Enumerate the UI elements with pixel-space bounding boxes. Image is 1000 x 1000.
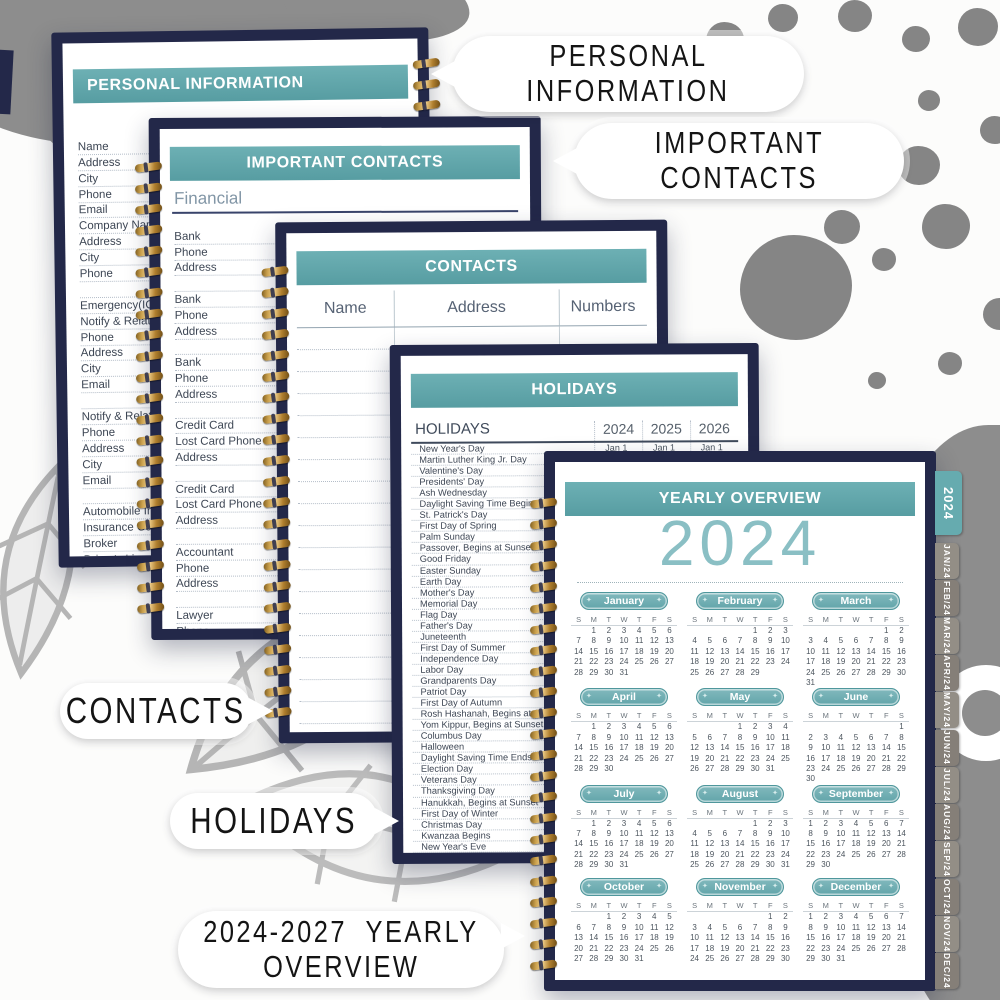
year-column-header: 2026 <box>690 420 738 440</box>
month-name-pill: ✦February✦ <box>696 592 784 610</box>
diamond-ornament-icon: ✦ <box>818 596 824 604</box>
weekday-letter: S <box>687 808 702 817</box>
tab-aug-24: AUG/24 <box>935 804 959 840</box>
day-number: 2 <box>894 626 909 636</box>
coil-ring <box>135 245 163 256</box>
day-number: 10 <box>833 829 848 839</box>
day-number: 21 <box>571 754 586 764</box>
day-number: 14 <box>879 743 894 753</box>
month-name-pill: ✦April✦ <box>580 688 668 706</box>
day-number <box>818 626 833 636</box>
day-number: 8 <box>803 829 818 839</box>
tab-sep-24: SEP/24 <box>935 841 959 877</box>
month-name-pill: ✦November✦ <box>696 878 784 896</box>
day-number: 13 <box>717 839 732 849</box>
month-calendar: ✦June✦SMTWTFS123456789101112131415161718… <box>803 688 909 784</box>
day-number: 1 <box>601 912 616 922</box>
day-number <box>662 954 677 964</box>
coil-ring <box>530 728 558 739</box>
day-number: 18 <box>848 839 863 849</box>
year-heading: 2024 <box>555 506 925 580</box>
tab-label: JUL/24 <box>942 768 952 802</box>
day-number: 29 <box>748 860 763 870</box>
weekday-letter: F <box>647 615 662 624</box>
day-number: 17 <box>818 754 833 764</box>
coil-ring <box>136 476 164 487</box>
field-label: Accountant <box>176 546 234 558</box>
tab-feb-24: FEB/24 <box>935 580 959 616</box>
day-number <box>586 912 601 922</box>
day-number: 30 <box>778 954 793 964</box>
day-number: 10 <box>818 743 833 753</box>
day-number: 17 <box>833 933 848 943</box>
day-number: 23 <box>803 764 818 774</box>
field-label: Lost Card Phone <box>176 499 262 511</box>
day-number <box>879 954 894 964</box>
day-number: 9 <box>818 829 833 839</box>
day-number <box>833 860 848 870</box>
weekday-letter: M <box>818 615 833 624</box>
day-number: 17 <box>763 743 778 753</box>
field-label: Lost Card Phone <box>175 436 261 448</box>
day-number: 27 <box>717 668 732 678</box>
day-number <box>894 954 909 964</box>
page-title: HOLIDAYS <box>531 381 617 399</box>
day-number: 26 <box>717 954 732 964</box>
day-number: 5 <box>687 733 702 743</box>
day-number: 14 <box>864 647 879 657</box>
day-number: 21 <box>732 850 747 860</box>
day-number <box>879 678 894 688</box>
day-number: 20 <box>864 754 879 764</box>
day-number: 28 <box>748 954 763 964</box>
weekday-letter: T <box>864 711 879 720</box>
day-number: 25 <box>687 668 702 678</box>
day-number: 14 <box>571 647 586 657</box>
diamond-ornament-icon: ✦ <box>586 596 592 604</box>
diamond-ornament-icon: ✦ <box>888 692 894 700</box>
day-number: 13 <box>662 636 677 646</box>
day-number: 17 <box>616 743 631 753</box>
day-number: 11 <box>848 829 863 839</box>
weekday-letter: T <box>833 808 848 817</box>
field-label: City <box>78 173 98 185</box>
day-number <box>571 626 586 636</box>
day-number: 1 <box>803 819 818 829</box>
weekday-letter: F <box>879 615 894 624</box>
day-number: 18 <box>632 839 647 849</box>
day-number <box>702 819 717 829</box>
weekday-header: SMTWTFS <box>571 708 677 722</box>
field-label: City <box>79 252 99 264</box>
day-number: 20 <box>662 743 677 753</box>
callout-contacts: CONTACTS <box>60 683 252 739</box>
field-label: Bank <box>175 357 201 369</box>
day-number: 15 <box>748 647 763 657</box>
polka-dot <box>922 204 970 249</box>
day-number: 26 <box>833 668 848 678</box>
day-number: 28 <box>894 944 909 954</box>
day-number: 1 <box>748 819 763 829</box>
day-number: 9 <box>601 733 616 743</box>
day-number: 13 <box>879 829 894 839</box>
day-number: 6 <box>732 923 747 933</box>
weekday-letter: T <box>717 901 732 910</box>
day-number: 12 <box>717 933 732 943</box>
day-number: 10 <box>616 829 631 839</box>
day-number: 6 <box>717 636 732 646</box>
year-column-header: 2024 <box>594 421 642 441</box>
month-name: May <box>730 691 750 703</box>
day-number: 26 <box>647 754 662 764</box>
day-number: 21 <box>571 850 586 860</box>
weekday-letter: S <box>662 901 677 910</box>
weekday-letter: W <box>848 711 863 720</box>
day-number: 29 <box>601 954 616 964</box>
day-number: 1 <box>748 626 763 636</box>
day-number: 30 <box>601 860 616 870</box>
weekday-letter: S <box>803 615 818 624</box>
day-number: 27 <box>848 668 863 678</box>
day-number: 1 <box>803 912 818 922</box>
day-number: 18 <box>778 743 793 753</box>
coil-ring <box>264 644 292 655</box>
coil-ring <box>135 287 163 298</box>
polka-dot <box>980 116 1000 144</box>
day-number: 9 <box>748 733 763 743</box>
day-number <box>732 819 747 829</box>
day-number: 30 <box>616 954 631 964</box>
weekday-letter: T <box>632 901 647 910</box>
coil-ring <box>136 518 164 529</box>
day-number: 27 <box>662 850 677 860</box>
day-number: 21 <box>894 839 909 849</box>
day-number: 5 <box>662 912 677 922</box>
day-number: 3 <box>803 636 818 646</box>
field-label: Phone <box>80 268 113 280</box>
table-cell <box>299 570 397 593</box>
day-number: 20 <box>662 839 677 849</box>
weekday-letter: W <box>732 615 747 624</box>
day-number: 21 <box>879 754 894 764</box>
day-number <box>571 912 586 922</box>
day-number: 29 <box>586 860 601 870</box>
day-grid: 1234567891011121314151617181920212223242… <box>571 626 677 678</box>
day-number: 16 <box>894 647 909 657</box>
day-number: 22 <box>803 944 818 954</box>
year-column-header: 2025 <box>642 420 690 440</box>
weekday-letter: M <box>818 711 833 720</box>
day-number <box>879 860 894 870</box>
month-name-pill: ✦July✦ <box>580 785 668 803</box>
coil-ring <box>136 497 164 508</box>
day-number: 21 <box>894 933 909 943</box>
day-number: 19 <box>848 754 863 764</box>
day-number <box>616 764 631 774</box>
page-title-band: CONTACTS <box>296 249 646 285</box>
tab-jan-24: JAN/24 <box>935 543 959 579</box>
day-number <box>778 764 793 774</box>
day-number: 2 <box>818 912 833 922</box>
polka-dot <box>768 4 798 32</box>
day-number: 24 <box>778 850 793 860</box>
diamond-ornament-icon: ✦ <box>656 692 662 700</box>
day-number: 7 <box>894 912 909 922</box>
weekday-letter: M <box>702 901 717 910</box>
weekday-letter: W <box>732 808 747 817</box>
column-header: Address <box>395 289 560 326</box>
months-grid: ✦January✦SMTWTFS123456789101112131415161… <box>571 592 909 972</box>
month-name-pill: ✦May✦ <box>696 688 784 706</box>
weekday-letter: S <box>778 615 793 624</box>
day-number <box>848 774 863 784</box>
day-number: 4 <box>702 923 717 933</box>
weekday-letter: W <box>848 901 863 910</box>
day-number: 24 <box>763 754 778 764</box>
day-number: 13 <box>571 933 586 943</box>
day-number <box>894 774 909 784</box>
callout-line: HOLIDAYS <box>191 801 358 841</box>
product-image-stage: PERSONAL INFORMATION NameAddressCityPhon… <box>0 0 1000 1000</box>
coil-ring <box>135 308 163 319</box>
day-number: 24 <box>632 944 647 954</box>
tab-dec-24: DEC/24 <box>935 953 959 989</box>
day-number: 23 <box>818 850 833 860</box>
month-calendar: ✦January✦SMTWTFS123456789101112131415161… <box>571 592 677 688</box>
field-label: Credit Card <box>176 483 235 495</box>
day-number: 27 <box>702 764 717 774</box>
day-number: 4 <box>632 819 647 829</box>
day-number: 12 <box>848 743 863 753</box>
day-number <box>702 626 717 636</box>
day-number <box>748 912 763 922</box>
weekday-letter: M <box>586 808 601 817</box>
month-name-pill: ✦June✦ <box>812 688 900 706</box>
field-label: Phone <box>175 310 208 322</box>
coil-ring <box>530 707 558 718</box>
day-number <box>864 954 879 964</box>
day-number <box>848 678 863 688</box>
coil-ring <box>262 392 290 403</box>
day-number: 10 <box>763 733 778 743</box>
day-number <box>687 626 702 636</box>
day-number: 3 <box>778 819 793 829</box>
diamond-ornament-icon: ✦ <box>818 882 824 890</box>
day-number: 12 <box>647 636 662 646</box>
day-number: 7 <box>879 733 894 743</box>
diamond-ornament-icon: ✦ <box>702 596 708 604</box>
weekday-letter: T <box>748 711 763 720</box>
day-number: 24 <box>778 657 793 667</box>
coil-ring <box>530 518 558 529</box>
day-number: 25 <box>632 754 647 764</box>
coil-ring <box>530 581 558 592</box>
field-label: Email <box>79 204 108 216</box>
page-title-band: HOLIDAYS <box>411 372 738 408</box>
day-number: 31 <box>778 860 793 870</box>
day-number: 21 <box>732 657 747 667</box>
tab-mar-24: MAR/24 <box>935 618 959 654</box>
day-number: 8 <box>586 829 601 839</box>
day-number: 9 <box>601 636 616 646</box>
day-number: 24 <box>616 754 631 764</box>
coil-ring <box>135 182 163 193</box>
polka-dot <box>958 8 998 46</box>
weekday-letter: T <box>601 615 616 624</box>
day-number: 26 <box>702 668 717 678</box>
day-number: 6 <box>662 722 677 732</box>
month-name-pill: ✦January✦ <box>580 592 668 610</box>
table-cell <box>299 680 397 703</box>
polka-dot <box>983 298 1000 330</box>
day-number: 10 <box>778 829 793 839</box>
day-number: 15 <box>879 647 894 657</box>
weekday-letter: T <box>833 711 848 720</box>
day-number: 12 <box>833 647 848 657</box>
day-number: 22 <box>601 944 616 954</box>
month-calendar: ✦August✦SMTWTFS1234567891011121314151617… <box>687 785 793 879</box>
coil-ring <box>413 100 441 112</box>
month-calendar: ✦September✦SMTWTFS1234567891011121314151… <box>803 785 909 879</box>
day-number: 2 <box>616 912 631 922</box>
coil-ring <box>136 455 164 466</box>
day-number: 24 <box>833 850 848 860</box>
callout-pointer-right <box>375 808 399 834</box>
day-number: 26 <box>647 850 662 860</box>
day-number: 7 <box>571 636 586 646</box>
weekday-letter: T <box>601 808 616 817</box>
day-number <box>818 722 833 732</box>
coil-ring <box>530 812 558 823</box>
tab-jun-24: JUN/24 <box>935 730 959 766</box>
tab-label: NOV/24 <box>942 916 952 952</box>
weekday-header: SMTWTFS <box>687 805 793 819</box>
field-label: Address <box>82 442 124 455</box>
coil-ring <box>137 560 165 571</box>
day-number <box>848 860 863 870</box>
day-number: 19 <box>702 850 717 860</box>
day-number <box>702 912 717 922</box>
day-number <box>662 668 677 678</box>
day-number: 5 <box>647 626 662 636</box>
day-number: 24 <box>687 954 702 964</box>
day-number: 16 <box>778 933 793 943</box>
day-number: 19 <box>647 839 662 849</box>
polka-dot <box>902 26 930 52</box>
day-number: 29 <box>586 764 601 774</box>
day-number: 25 <box>833 764 848 774</box>
field-label: Phone <box>176 562 209 574</box>
coil-ring <box>530 791 558 802</box>
day-number: 7 <box>748 923 763 933</box>
field-label: Broker <box>83 538 117 550</box>
field-label: Name <box>78 141 109 153</box>
day-number <box>632 668 647 678</box>
day-number: 6 <box>662 819 677 829</box>
day-number: 27 <box>662 754 677 764</box>
weekday-letter: S <box>571 615 586 624</box>
weekday-letter: F <box>647 711 662 720</box>
diamond-ornament-icon: ✦ <box>586 692 592 700</box>
day-number: 28 <box>571 764 586 774</box>
day-number: 3 <box>833 819 848 829</box>
month-name: September <box>829 788 883 800</box>
coil-ring <box>135 350 163 361</box>
table-cell <box>299 658 397 681</box>
tab-label: SEP/24 <box>942 842 952 877</box>
day-number <box>647 954 662 964</box>
day-number: 8 <box>601 923 616 933</box>
day-number: 27 <box>879 944 894 954</box>
weekday-header: SMTWTFS <box>687 898 793 912</box>
day-number: 18 <box>848 933 863 943</box>
day-number: 7 <box>717 733 732 743</box>
day-number: 13 <box>717 647 732 657</box>
weekday-letter: T <box>632 615 647 624</box>
weekday-letter: T <box>632 711 647 720</box>
polka-dot <box>872 248 896 271</box>
coil-ring <box>530 770 558 781</box>
day-number: 30 <box>818 860 833 870</box>
weekday-letter: F <box>763 808 778 817</box>
table-cell <box>299 636 397 659</box>
weekday-letter: T <box>601 711 616 720</box>
callout-line: 2024-2027 YEARLY <box>203 915 478 950</box>
day-number: 6 <box>848 636 863 646</box>
day-number: 9 <box>763 829 778 839</box>
coil-ring <box>530 602 558 613</box>
day-number <box>732 626 747 636</box>
day-number: 17 <box>632 933 647 943</box>
coil-ring <box>530 938 558 949</box>
day-number: 8 <box>748 829 763 839</box>
field-label: Phone <box>78 188 111 200</box>
weekday-letter: F <box>879 808 894 817</box>
page-yearly-overview: YEARLY OVERVIEW 2024 ✦January✦SMTWTFS123… <box>544 451 936 991</box>
day-number: 8 <box>894 733 909 743</box>
day-number <box>879 774 894 784</box>
day-number: 6 <box>702 733 717 743</box>
month-calendar: ✦November✦SMTWTFS12345678910111213141516… <box>687 878 793 972</box>
day-number <box>778 668 793 678</box>
day-number: 1 <box>586 722 601 732</box>
day-number: 7 <box>732 636 747 646</box>
day-grid: 1234567891011121314151617181920212223242… <box>803 912 909 964</box>
page-title-band: IMPORTANT CONTACTS <box>170 145 520 181</box>
day-number: 2 <box>778 912 793 922</box>
day-number: 8 <box>879 636 894 646</box>
day-number <box>717 819 732 829</box>
coil-ring <box>263 539 291 550</box>
day-number: 9 <box>763 636 778 646</box>
day-number <box>894 678 909 688</box>
weekday-letter: S <box>803 808 818 817</box>
callout-line: CONTACTS <box>660 161 818 196</box>
day-number <box>662 764 677 774</box>
field-label: Address <box>79 236 121 249</box>
coil-ring <box>262 413 290 424</box>
diamond-ornament-icon: ✦ <box>656 789 662 797</box>
tab-oct-24: OCT/24 <box>935 879 959 915</box>
day-number: 9 <box>803 743 818 753</box>
coil-ring <box>263 476 291 487</box>
day-number: 27 <box>864 764 879 774</box>
coil-ring <box>530 497 558 508</box>
field-label: Address <box>175 388 217 400</box>
day-number: 16 <box>601 743 616 753</box>
table-cell <box>298 438 396 461</box>
day-number: 28 <box>894 850 909 860</box>
